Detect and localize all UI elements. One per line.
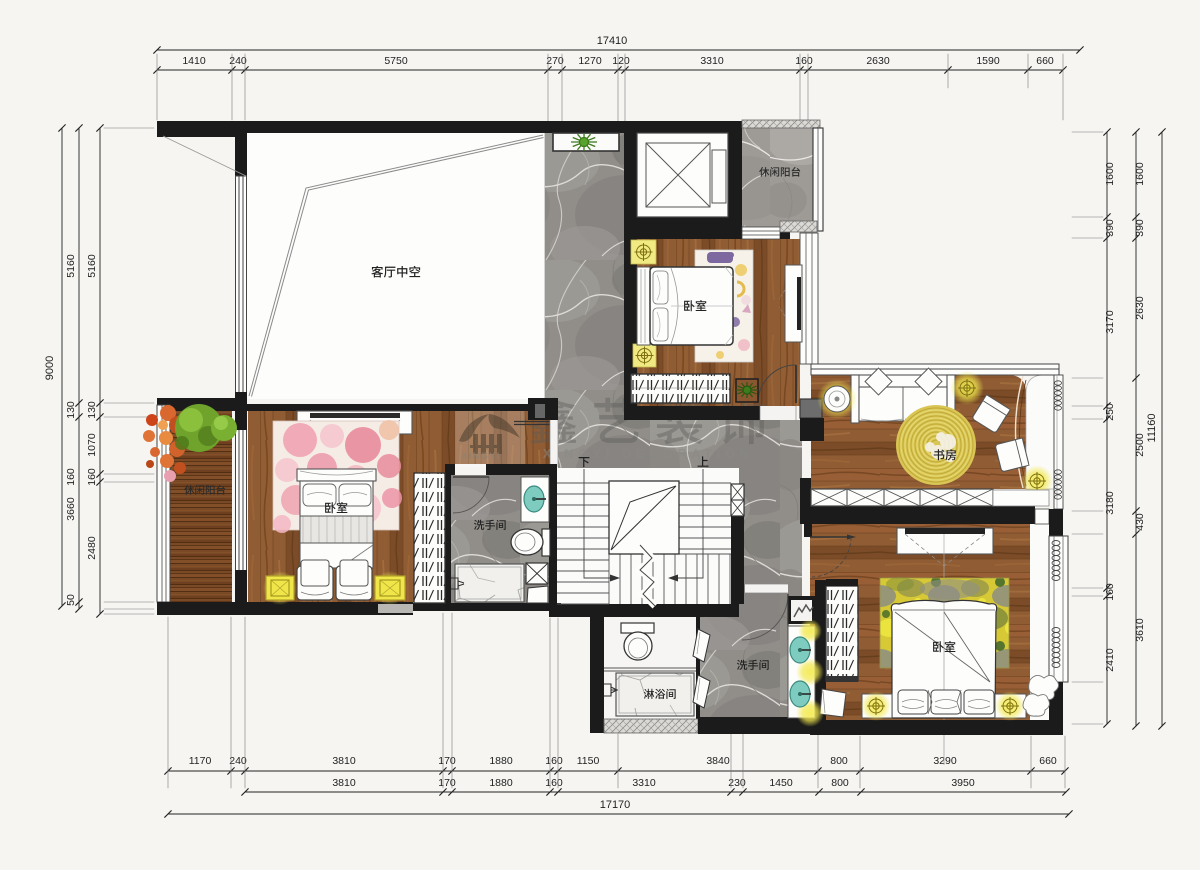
- svg-text:170: 170: [438, 777, 456, 789]
- svg-text:1150: 1150: [577, 755, 600, 767]
- svg-text:2630: 2630: [1134, 296, 1146, 320]
- svg-text:5160: 5160: [65, 254, 77, 278]
- svg-text:9000: 9000: [44, 356, 56, 380]
- svg-text:3170: 3170: [1104, 310, 1116, 334]
- svg-text:1880: 1880: [489, 777, 513, 789]
- svg-text:130: 130: [65, 401, 77, 419]
- svg-text:1450: 1450: [769, 777, 793, 789]
- svg-text:2630: 2630: [866, 55, 890, 67]
- svg-text:3810: 3810: [332, 755, 356, 767]
- svg-text:3290: 3290: [933, 755, 957, 767]
- svg-text:17170: 17170: [600, 799, 631, 811]
- svg-text:3660: 3660: [65, 497, 77, 521]
- svg-text:XINGYI DECORATION: XINGYI DECORATION: [543, 446, 754, 461]
- svg-text:1070: 1070: [86, 433, 98, 457]
- svg-text:3180: 3180: [1104, 491, 1116, 515]
- svg-text:1170: 1170: [189, 755, 212, 767]
- svg-text:3840: 3840: [706, 755, 730, 767]
- svg-text:130: 130: [86, 401, 98, 419]
- svg-text:5750: 5750: [384, 55, 408, 67]
- svg-text:160: 160: [65, 468, 77, 486]
- svg-text:2410: 2410: [1104, 648, 1116, 672]
- svg-text:240: 240: [229, 755, 247, 767]
- svg-text:11160: 11160: [1146, 414, 1158, 443]
- svg-text:170: 170: [438, 755, 456, 767]
- svg-text:50: 50: [65, 594, 77, 606]
- svg-text:3810: 3810: [332, 777, 356, 789]
- svg-text:160: 160: [1104, 583, 1116, 601]
- svg-text:1600: 1600: [1134, 162, 1146, 186]
- svg-text:2500: 2500: [1134, 433, 1146, 457]
- svg-text:160: 160: [545, 777, 563, 789]
- svg-text:160: 160: [545, 755, 563, 767]
- svg-text:3310: 3310: [700, 55, 724, 67]
- svg-text:1600: 1600: [1104, 162, 1116, 186]
- svg-text:390: 390: [1134, 219, 1146, 237]
- svg-text:160: 160: [86, 468, 98, 486]
- svg-text:1270: 1270: [578, 55, 602, 67]
- svg-text:430: 430: [1134, 513, 1146, 531]
- svg-text:120: 120: [612, 55, 630, 67]
- svg-text:800: 800: [831, 777, 849, 789]
- svg-text:270: 270: [546, 55, 564, 67]
- svg-text:3310: 3310: [632, 777, 656, 789]
- svg-text:2480: 2480: [86, 536, 98, 560]
- svg-text:17410: 17410: [597, 35, 628, 47]
- svg-text:3950: 3950: [951, 777, 975, 789]
- svg-text:800: 800: [830, 755, 848, 767]
- svg-text:3610: 3610: [1134, 618, 1146, 642]
- svg-text:XINGYI: XINGYI: [461, 451, 501, 461]
- svg-text:5160: 5160: [86, 254, 98, 278]
- svg-text:160: 160: [795, 55, 813, 67]
- svg-text:1880: 1880: [489, 755, 513, 767]
- svg-text:1590: 1590: [976, 55, 1000, 67]
- svg-text:390: 390: [1104, 219, 1116, 237]
- svg-text:250: 250: [1104, 403, 1116, 421]
- svg-text:660: 660: [1036, 55, 1054, 67]
- svg-text:660: 660: [1039, 755, 1057, 767]
- svg-text:1410: 1410: [182, 55, 206, 67]
